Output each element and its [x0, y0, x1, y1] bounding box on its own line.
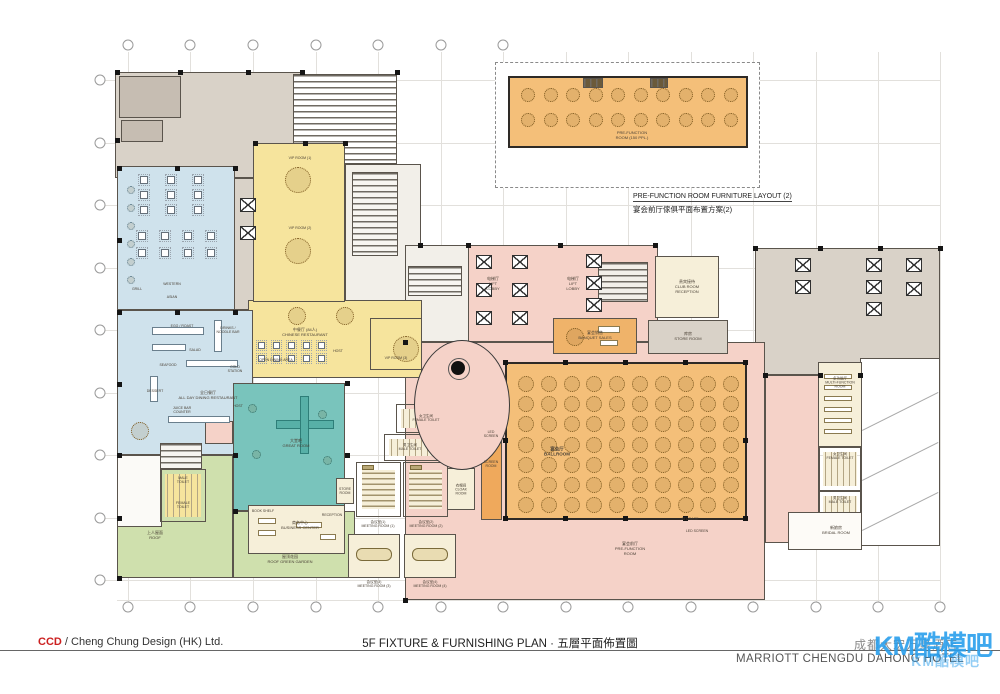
structural-column: [563, 360, 568, 365]
structural-column: [818, 373, 823, 378]
banquet-table: [632, 437, 648, 453]
grid-bubble: [185, 602, 196, 613]
dining-table: [194, 176, 202, 184]
furniture: [320, 534, 336, 540]
furniture: [824, 429, 852, 434]
room-label: 会议室(1) MEETING ROOM (1): [361, 520, 394, 528]
dimension-line: [117, 600, 940, 601]
banquet-table: [541, 396, 557, 412]
room-label: OPEN DINING AREA: [259, 358, 292, 362]
structural-column: [818, 246, 823, 251]
grid-bubble: [873, 602, 884, 613]
grid-bubble: [623, 602, 634, 613]
round-table: [127, 276, 135, 284]
banquet-table: [541, 457, 557, 473]
room-label: 会议室(2) MEETING ROOM (2): [409, 520, 442, 528]
dining-table: [167, 206, 175, 214]
structural-column: [117, 310, 122, 315]
room-label: SCREEN ROOM: [484, 460, 499, 468]
structural-column: [300, 70, 305, 75]
room-label: 会议室(3) MEETING ROOM (3): [357, 580, 390, 588]
round-table: [285, 167, 311, 193]
grid-line-vertical: [940, 52, 941, 602]
dining-table: [318, 355, 325, 362]
banquet-table: [655, 376, 671, 392]
banquet-table: [723, 457, 739, 473]
structural-column: [175, 310, 180, 315]
dining-table: [161, 232, 169, 240]
structural-column: [175, 166, 180, 171]
structural-column: [233, 509, 238, 514]
round-table: [127, 204, 135, 212]
banquet-table: [544, 113, 558, 127]
structural-column: [558, 243, 563, 248]
watermark-logo-small: KM酷模吧: [911, 651, 980, 671]
structural-column: [503, 360, 508, 365]
banquet-table: [541, 477, 557, 493]
grid-bubble: [95, 263, 106, 274]
room-label: ASIAN: [167, 295, 178, 299]
dining-table: [184, 232, 192, 240]
room-label: MALE TOILET: [177, 476, 189, 484]
dining-table: [288, 342, 295, 349]
plan-title-en: 5F FIXTURE & FURNISHING PLAN: [362, 638, 547, 650]
room-label: GRILL: [132, 287, 142, 291]
design-firm-credit: CCD / Cheng Chung Design (HK) Ltd.: [38, 636, 223, 648]
room-label: 中餐厅 (84人) CHINESE RESTAURANT: [282, 328, 328, 338]
inset-block-b: [650, 78, 668, 88]
grid-bubble: [95, 450, 106, 461]
structural-column: [743, 516, 748, 521]
banquet-table: [589, 88, 603, 102]
room-label: BOOK SHELF: [252, 509, 274, 513]
room-label: 会议室(4) MEETING ROOM (4): [413, 580, 446, 588]
dining-table: [167, 191, 175, 199]
structural-column: [343, 141, 348, 146]
firm-abbr: CCD: [38, 636, 62, 648]
furniture: [152, 327, 204, 335]
round-table: [285, 238, 311, 264]
room-label: 新娘房 BRIDAL ROOM: [822, 526, 850, 536]
grid-bubble: [248, 40, 259, 51]
room-label: 大堂吧 GREAT ROOM: [283, 439, 310, 449]
banquet-table: [724, 88, 738, 102]
grid-bubble: [95, 75, 106, 86]
floor-plan-canvas: 电梯厅 LIFT LOBBY电梯厅 LIFT LOBBY贵宾接待 CLUB RO…: [0, 0, 1000, 694]
banquet-table: [609, 437, 625, 453]
round-table: [127, 222, 135, 230]
plan-title-separator: ·: [550, 638, 554, 650]
grid-bubble: [311, 40, 322, 51]
banquet-table: [656, 113, 670, 127]
structural-column: [117, 516, 122, 521]
banquet-table: [655, 396, 671, 412]
lift-shaft: [795, 258, 811, 272]
dining-table: [194, 206, 202, 214]
banquet-table: [564, 416, 580, 432]
grid-bubble: [123, 602, 134, 613]
lift-shaft: [240, 198, 256, 212]
dining-table: [258, 342, 265, 349]
structural-column: [345, 381, 350, 386]
round-table: [127, 186, 135, 194]
banquet-table: [544, 88, 558, 102]
room-label: 上人屋面 ROOF: [147, 531, 163, 541]
structural-column: [653, 243, 658, 248]
room-label: LED SCREEN: [686, 529, 708, 533]
furniture: [356, 548, 392, 561]
stair-upper: [352, 172, 398, 256]
grid-bubble: [935, 602, 946, 613]
lift-shaft: [586, 276, 602, 290]
banquet-table: [564, 376, 580, 392]
banquet-table: [518, 437, 534, 453]
banquet-table: [678, 416, 694, 432]
grid-bubble: [95, 575, 106, 586]
furniture: [412, 548, 448, 561]
dining-table: [138, 249, 146, 257]
room-label: 宴会厅 BALLROOM: [544, 447, 570, 458]
dining-table: [140, 206, 148, 214]
structural-column: [403, 340, 408, 345]
room-label: 衣帽间 CLOAK ROOM: [455, 484, 467, 497]
round-table: [127, 240, 135, 248]
room-label: DRINKS / NOODLE BAR: [217, 326, 240, 334]
structural-column: [117, 382, 122, 387]
room-label: 女卫生间 FEMALE TOILET: [412, 414, 439, 422]
grid-bubble: [95, 388, 106, 399]
private-room-pink: [205, 421, 233, 444]
dining-table: [318, 342, 325, 349]
furniture: [258, 530, 276, 536]
furniture: [152, 344, 186, 351]
round-table: [131, 422, 149, 440]
banquet-table: [655, 457, 671, 473]
room-label: 电梯厅 LIFT LOBBY: [566, 277, 579, 291]
lift-shaft: [512, 311, 528, 325]
grid-bubble: [436, 40, 447, 51]
banquet-table: [701, 88, 715, 102]
room-label: 屋顶花园 ROOF GREEN GARDEN: [267, 555, 312, 565]
banquet-table: [656, 88, 670, 102]
grid-bubble: [748, 602, 759, 613]
lift-shaft: [476, 311, 492, 325]
banquet-table: [700, 437, 716, 453]
room-label: COLD STATION: [228, 365, 243, 373]
banquet-table: [564, 396, 580, 412]
furniture: [168, 416, 230, 423]
banquet-table: [678, 497, 694, 513]
room-label: FEMALE TOILET: [176, 501, 190, 509]
room-label: VIP ROOM (2): [289, 226, 312, 230]
room-label: HOST: [333, 349, 343, 353]
banquet-table: [611, 88, 625, 102]
banquet-table: [678, 437, 694, 453]
banquet-table: [541, 497, 557, 513]
lift-shaft: [512, 283, 528, 297]
oval-column-dot: [451, 361, 465, 375]
room-label: WESTERN: [163, 282, 181, 286]
room-label: 男卫生间 MALE TOILET: [399, 443, 422, 451]
plan-title-zh: 五層平面佈置圖: [557, 638, 638, 650]
structural-column: [115, 138, 120, 143]
banquet-table: [678, 396, 694, 412]
banquet-table: [589, 113, 603, 127]
lift-shaft: [906, 258, 922, 272]
structural-column: [623, 516, 628, 521]
room-label: 男卫生间 MALE TOILET: [829, 496, 852, 504]
structural-column: [418, 243, 423, 248]
room-label: VIP ROOM (3): [385, 356, 408, 360]
room-label: 库房 STORE ROOM: [674, 332, 701, 342]
grid-bubble: [311, 602, 322, 613]
room-label: 多功能厅 MULTI-FUNCTION ROOM: [825, 377, 855, 390]
grid-bubble: [686, 602, 697, 613]
inset-title-zh: 宴会前厅傢俱平面布置方案(2): [633, 204, 732, 215]
lift-shaft: [866, 258, 882, 272]
grid-bubble: [436, 602, 447, 613]
banquet-table: [632, 477, 648, 493]
banquet-table: [586, 437, 602, 453]
grid-bubble: [373, 602, 384, 613]
furniture: [410, 465, 422, 470]
drawing-sheet: 电梯厅 LIFT LOBBY电梯厅 LIFT LOBBY贵宾接待 CLUB RO…: [0, 0, 1000, 694]
meeting-room-2: [403, 462, 448, 517]
banquet-table: [609, 457, 625, 473]
dining-table: [207, 249, 215, 257]
room-label: DESSERT: [147, 389, 163, 393]
structural-column: [117, 453, 122, 458]
structural-column: [858, 373, 863, 378]
structural-column: [403, 598, 408, 603]
structural-column: [743, 360, 748, 365]
banquet-table: [634, 113, 648, 127]
banquet-table: [678, 477, 694, 493]
boh-topleft-block-b: [121, 120, 163, 142]
banquet-table: [518, 457, 534, 473]
furniture: [824, 407, 852, 412]
banquet-table: [723, 437, 739, 453]
structural-column: [253, 141, 258, 146]
lift-shaft: [586, 298, 602, 312]
banquet-table: [655, 437, 671, 453]
grid-bubble: [95, 513, 106, 524]
banquet-table: [678, 457, 694, 473]
lift-shaft: [512, 255, 528, 269]
lift-shaft: [906, 282, 922, 296]
dining-table: [184, 249, 192, 257]
banquet-table: [566, 113, 580, 127]
room-label: STORE ROOM: [339, 487, 351, 495]
structural-column: [117, 576, 122, 581]
lift-shaft: [866, 280, 882, 294]
room-label: SALAD: [189, 348, 200, 352]
room-label: PRE-FUNCTION ROOM (150 PPL.): [616, 131, 649, 141]
structural-column: [303, 141, 308, 146]
structural-column: [117, 166, 122, 171]
rooms-left-white: [117, 455, 162, 527]
lift-shaft: [240, 226, 256, 240]
dining-table: [167, 176, 175, 184]
round-table: [127, 258, 135, 266]
structural-column: [623, 360, 628, 365]
dining-table: [140, 191, 148, 199]
banquet-table: [701, 113, 715, 127]
furniture: [600, 340, 618, 346]
dining-table: [161, 249, 169, 257]
round-table: [323, 456, 332, 465]
stair-a: [408, 266, 462, 296]
banquet-table: [634, 88, 648, 102]
round-table: [288, 307, 306, 325]
room-label: VIP ROOM (1): [289, 156, 312, 160]
grid-bubble: [498, 40, 509, 51]
banquet-table: [566, 88, 580, 102]
round-table: [336, 307, 354, 325]
grid-bubble: [561, 602, 572, 613]
banquet-table: [611, 113, 625, 127]
structural-column: [938, 246, 943, 251]
ramp-void: [860, 358, 940, 546]
room-label: 宴会销售 BANQUET SALES: [578, 331, 611, 341]
structural-column: [115, 70, 120, 75]
furniture: [824, 396, 852, 401]
dining-table: [303, 355, 310, 362]
structural-column: [683, 360, 688, 365]
inset-block-a: [583, 78, 603, 88]
furniture: [258, 518, 276, 524]
structural-column: [743, 438, 748, 443]
structural-column: [117, 238, 122, 243]
dining-table: [273, 342, 280, 349]
round-table: [252, 450, 261, 459]
structural-column: [233, 453, 238, 458]
structural-column: [345, 453, 350, 458]
grid-bubble: [373, 40, 384, 51]
structural-column: [753, 246, 758, 251]
grid-bubble: [248, 602, 259, 613]
room-label: 电梯厅 LIFT LOBBY: [486, 277, 499, 291]
dining-table: [303, 342, 310, 349]
room-label: JUICE BAR COUNTER: [173, 406, 191, 414]
firm-name: / Cheng Chung Design (HK) Ltd.: [62, 636, 223, 648]
round-table: [248, 404, 257, 413]
room-label: 全日餐厅 ALL DAY DINING RESTAURANT: [179, 391, 238, 401]
room-label: HOST: [233, 404, 243, 408]
room-label: RECEPTION: [322, 513, 342, 517]
banquet-table: [632, 376, 648, 392]
grid-bubble: [811, 602, 822, 613]
room-label: 商务中心 BUSINESS CENTER: [281, 521, 319, 531]
lift-shaft: [795, 280, 811, 294]
stair-b: [598, 262, 648, 302]
plan-title: 5F FIXTURE & FURNISHING PLAN · 五層平面佈置圖: [330, 635, 670, 651]
meeting-room-1: [356, 462, 401, 517]
structural-column: [563, 516, 568, 521]
banquet-table: [724, 113, 738, 127]
furniture: [824, 418, 852, 423]
banquet-table: [679, 113, 693, 127]
structural-column: [178, 70, 183, 75]
structural-column: [503, 438, 508, 443]
lift-shaft: [866, 302, 882, 316]
dining-table: [138, 232, 146, 240]
lift-shaft: [476, 255, 492, 269]
banquet-table: [679, 88, 693, 102]
banquet-table: [655, 477, 671, 493]
room-label: 女卫生间 FEMALE TOILET: [826, 452, 853, 460]
banquet-table: [564, 497, 580, 513]
structural-column: [878, 246, 883, 251]
banquet-table: [518, 477, 534, 493]
dining-table: [207, 232, 215, 240]
room-label: 贵宾接待 CLUB ROOM RECEPTION: [675, 280, 699, 294]
structural-column: [233, 310, 238, 315]
structural-column: [395, 70, 400, 75]
banquet-table: [541, 376, 557, 392]
banquet-table: [521, 113, 535, 127]
dining-table: [194, 191, 202, 199]
structural-column: [466, 243, 471, 248]
structural-column: [763, 373, 768, 378]
banquet-table: [564, 477, 580, 493]
grid-bubble: [95, 138, 106, 149]
grid-bubble: [95, 200, 106, 211]
banquet-table: [564, 457, 580, 473]
inset-title-en: PRE-FUNCTION ROOM FURNITURE LAYOUT (2): [633, 193, 792, 202]
banquet-table: [521, 88, 535, 102]
furniture: [214, 320, 222, 352]
structural-column: [233, 166, 238, 171]
stair-left: [160, 443, 202, 469]
structural-column: [246, 70, 251, 75]
grid-bubble: [123, 40, 134, 51]
banquet-table: [632, 457, 648, 473]
banquet-table: [518, 376, 534, 392]
banquet-table: [655, 497, 671, 513]
dining-table: [140, 176, 148, 184]
structural-column: [503, 516, 508, 521]
lift-shaft: [586, 254, 602, 268]
grid-bubble: [95, 325, 106, 336]
room-label: SEAFOOD: [159, 363, 176, 367]
room-label: LED SCREEN: [484, 430, 499, 438]
banquet-table: [678, 376, 694, 392]
grid-bubble: [498, 602, 509, 613]
furniture: [362, 465, 374, 470]
room-label: STORAGE: [681, 517, 698, 521]
round-table: [318, 410, 327, 419]
boh-topleft-block-a: [119, 76, 181, 118]
room-label: 宴会前厅 PRE-FUNCTION ROOM: [615, 542, 645, 556]
grid-bubble: [185, 40, 196, 51]
room-label: EGG / ROAST: [171, 324, 194, 328]
